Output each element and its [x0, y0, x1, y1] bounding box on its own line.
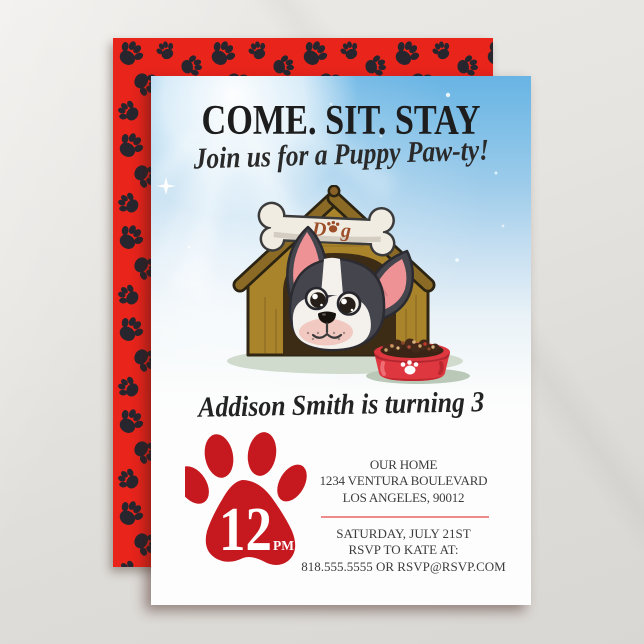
svg-text:12: 12: [219, 494, 272, 564]
svg-text:g: g: [340, 220, 352, 242]
